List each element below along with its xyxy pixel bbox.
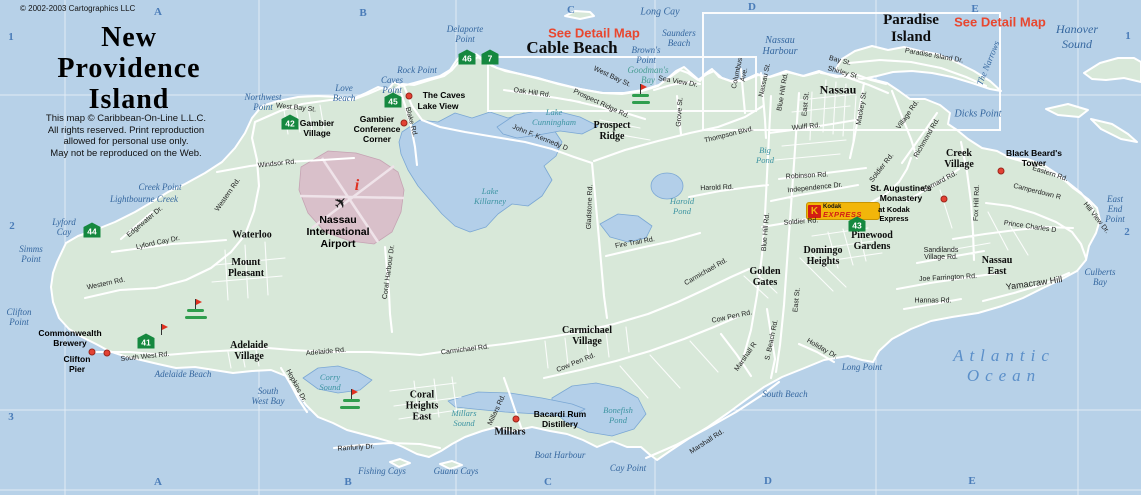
label-cow-pen-rd: Cow Pen Rd. <box>556 352 597 374</box>
label-waterloo: Waterloo <box>232 230 271 241</box>
grid-label-e: E <box>968 475 975 487</box>
label-long-point: Long Point <box>842 362 882 372</box>
poi-dot <box>89 349 96 356</box>
grid-label-b: B <box>359 7 366 19</box>
grid-label-2: 2 <box>9 220 15 232</box>
label-s-beach-rd: S. Beach Rd. <box>764 319 779 361</box>
label-joe-farrington-rd: Joe Farrington Rd. <box>919 273 977 283</box>
label-harold: Harold Pond <box>670 196 694 216</box>
label-blue-hill-rd: Blue Hill Rd. <box>761 213 771 252</box>
label-soldier-rd: Soldier Rd. <box>869 152 896 184</box>
golf-flag-icon <box>636 84 646 95</box>
label-thompson-blvd: Thompson Blvd. <box>704 125 755 144</box>
label-lake: Lake Cunningham <box>532 107 576 127</box>
label-sea-view-dr: Sea View Dr. <box>658 75 699 89</box>
label-camperdown-r: Camperdown R <box>1013 183 1062 202</box>
label-grove-st: Grove St. <box>675 97 684 127</box>
label-paradise-island-dr: Paradise Island Dr. <box>904 47 963 64</box>
poi-dot <box>406 93 413 100</box>
label-south-beach: South Beach <box>762 389 807 399</box>
map-marker-7[interactable]: 7 <box>482 50 499 65</box>
label-creek: Creek Village <box>944 148 974 170</box>
label-hanover-sound: Hanover Sound <box>1045 22 1109 52</box>
label-clifton: Clifton Pier <box>64 354 91 374</box>
poi-dot <box>401 120 408 127</box>
label-bacardi-rum: Bacardi Rum Distillery <box>534 409 586 429</box>
label-south: South West Bay <box>252 386 285 406</box>
label-goodman-s: Goodman's Bay <box>628 65 669 85</box>
label-carmichael-rd: Carmichael Rd. <box>441 344 490 357</box>
poi-dot <box>513 416 520 423</box>
grid-label-a: A <box>154 6 162 18</box>
label-bonefish: Bonefish Pond <box>603 405 633 425</box>
label-sandilands: Sandilands Village Rd. <box>924 247 959 261</box>
new-providence-island-map: © 2002-2003 Cartographics LLC New Provid… <box>0 0 1141 495</box>
label-northwest: Northwest Point <box>244 92 281 112</box>
label-delaporte: Delaporte Point <box>447 24 484 44</box>
label-at-kodak: at Kodak Express <box>878 205 910 223</box>
label-cay-point: Cay Point <box>610 463 646 473</box>
label-dicks-point: Dicks Point <box>955 109 1002 120</box>
label-holiday-dr: Holiday Dr. <box>805 337 838 360</box>
label-bernard-rd: Bernard Rd. <box>922 170 959 194</box>
label-boat-harbour: Boat Harbour <box>535 450 586 460</box>
map-marker-44[interactable]: 44 <box>84 223 101 238</box>
label-lyford-cay-dr: Lyford Cay Dr. <box>136 235 181 251</box>
poi-dot <box>998 168 1005 175</box>
grid-label-d: D <box>748 1 756 13</box>
label-marshall-r: Marshall R <box>734 341 759 372</box>
grid-label-a: A <box>154 476 162 488</box>
label-western-rd: Western Rd. <box>214 177 242 213</box>
label-golden: Golden Gates <box>749 266 780 288</box>
map-marker-41[interactable]: 41 <box>138 334 155 349</box>
label-richmond-rd: Richmond Rd. <box>913 117 941 159</box>
map-marker-46[interactable]: 46 <box>459 50 476 65</box>
labels-layer: Long CayHanover SoundThe NarrowsSaunders… <box>0 0 1141 495</box>
label-the-narrows: The Narrows <box>975 39 1002 86</box>
label-nassau: Nassau Harbour <box>762 35 797 57</box>
grid-label-2: 2 <box>1124 226 1130 238</box>
label-long-cay: Long Cay <box>640 7 679 18</box>
label-east-st: East St. <box>801 91 811 116</box>
label-fishing-cays: Fishing Cays <box>358 466 406 476</box>
label-wulff-rd: Wulff Rd. <box>791 122 820 132</box>
label-south-west-rd: South West Rd. <box>120 351 169 363</box>
label-st-augustine-s: St. Augustine's Monastery <box>870 183 931 203</box>
label-fox-hill-rd: Fox Hill Rd. <box>973 185 981 221</box>
label-western-rd: Western Rd. <box>86 277 125 292</box>
label-nassau: Nassau International Airport <box>306 214 369 250</box>
label-west-bay-st: West Bay St. <box>276 102 317 113</box>
label-oak-hill-rd: Oak Hill Rd. <box>513 87 551 99</box>
label-shirley-st: Shirley St. <box>827 65 860 81</box>
label-prospect: Prospect Ridge <box>593 120 630 142</box>
grid-label-c: C <box>567 4 575 16</box>
label-mackey-st: Mackey St. <box>856 90 869 125</box>
grid-label-e: E <box>971 3 978 15</box>
see-detail-map-link[interactable]: See Detail Map <box>548 26 640 41</box>
label-cable-beach: Cable Beach <box>526 38 617 58</box>
see-detail-map-link[interactable]: See Detail Map <box>954 15 1046 30</box>
label-adelaide-rd: Adelaide Rd. <box>306 347 347 357</box>
golf-flag-icon <box>191 299 201 310</box>
label-millars: Millars Sound <box>451 408 476 428</box>
map-marker-45[interactable]: 45 <box>385 93 402 108</box>
label-west-bay-st: West Bay St. <box>592 65 632 88</box>
label-brown-s: Brown's Point <box>631 45 660 65</box>
label-gambier: Gambier Conference Corner <box>354 114 401 144</box>
grid-label-3: 3 <box>8 411 14 423</box>
label-harold-rd: Harold Rd. <box>700 184 734 192</box>
label-hill-view-dr: Hill View Dr. <box>1082 201 1111 235</box>
label-fire-trail-rd: Fire Trail Rd. <box>615 236 656 250</box>
label-paradise: Paradise Island <box>883 12 939 46</box>
label-lake-view: Lake View <box>418 101 459 111</box>
label-coral: Coral Heights East <box>406 390 439 423</box>
label-adelaide: Adelaide Village <box>230 340 268 362</box>
label-hopkins-dr: Hopkins Dr. <box>284 368 307 403</box>
label-prospect-ridge-rd: Prospect Ridge Rd. <box>572 88 630 120</box>
label-windsor-rd: Windsor Rd. <box>257 159 296 170</box>
label-independence-dr: Independence Dr. <box>787 182 843 195</box>
label-lightbourne-creek: Lightbourne Creek <box>110 194 178 204</box>
label-carmichael-rd: Carmichael Rd. <box>683 257 728 287</box>
map-marker-42[interactable]: 42 <box>282 115 299 130</box>
label-east-st: East St. <box>792 287 802 312</box>
label-prince-charles-d: Prince Charles D <box>1003 220 1056 234</box>
label-commonwealth: Commonwealth Brewery <box>38 328 101 348</box>
label-gladstone-rd: Gladstone Rd. <box>586 185 595 230</box>
label-rock-point: Rock Point <box>397 65 437 75</box>
label-blue-hill-rd: Blue Hill Rd. <box>776 72 790 111</box>
label-adelaide-beach: Adelaide Beach <box>155 369 212 379</box>
grid-label-c: C <box>544 476 552 488</box>
poi-dot <box>941 196 948 203</box>
label-john-f-kennedy-d: John F. Kennedy D <box>511 124 568 153</box>
label-village-rd: Village Rd. <box>895 99 920 131</box>
golf-flag-icon <box>347 389 357 400</box>
label-lake: Lake Killarney <box>474 186 506 206</box>
label-atlantic-ocean: Atlantic Ocean <box>936 346 1073 386</box>
label-the-caves: The Caves <box>423 90 466 100</box>
label-soldier-rd: Soldier Rd. <box>783 217 818 226</box>
label-ranfurly-dr: Ranfurly Dr. <box>337 443 374 453</box>
label-carmichael: Carmichael Village <box>562 325 612 347</box>
label-yamacraw-hill: Yamacraw Hill <box>1005 274 1063 292</box>
label-mount: Mount Pleasant <box>228 257 264 279</box>
label-love: Love Beach <box>333 83 356 103</box>
label-domingo: Domingo Heights <box>804 245 843 267</box>
label-east: East End Point <box>1105 194 1125 224</box>
label-black-beard-s: Black Beard's Tower <box>1006 148 1062 168</box>
label-hannas-rd: Hannas Rd. <box>915 298 952 305</box>
label-millars-rd: Millars Rd. <box>487 394 507 427</box>
label-pinewood: Pinewood Gardens <box>851 230 893 252</box>
label-nassau: Nassau <box>820 83 857 98</box>
label-saunders: Saunders Beach <box>662 28 696 48</box>
label-marshall-rd: Marshall Rd. <box>689 428 726 455</box>
grid-label-d: D <box>764 475 772 487</box>
label-guana-cays: Guana Cays <box>434 466 479 476</box>
grid-label-1: 1 <box>8 31 14 43</box>
label-corry: Corry Sound <box>319 372 340 392</box>
label-culberts: Culberts Bay <box>1084 267 1115 287</box>
label-coral-harbour-dr: Coral Harbour Dr. <box>382 244 397 299</box>
label-robinson-rd: Robinson Rd. <box>786 171 829 180</box>
label-creek-point: Creek Point <box>139 182 182 192</box>
label-eastern-rd: Eastern Rd. <box>1031 165 1068 183</box>
label-bay-st: Bay St. <box>828 55 852 67</box>
label-clifton: Clifton Point <box>6 307 31 327</box>
label-nassau-st: Nassau St. <box>758 63 772 98</box>
label-columbus: Columbus Ave. <box>731 57 751 91</box>
label-cow-pen-rd: Cow Pen Rd. <box>711 309 753 324</box>
label-edgewater-dr: Edgewater Dr. <box>126 205 164 239</box>
golf-flag-icon <box>157 324 167 335</box>
label-millars: Millars <box>494 427 525 438</box>
label-simms: Simms Point <box>19 244 43 264</box>
grid-label-b: B <box>344 476 351 488</box>
map-marker-43[interactable]: 43 <box>849 217 866 232</box>
label-caves: Caves Point <box>381 75 403 95</box>
label-big: Big Pond <box>756 145 774 165</box>
label-gambier: Gambier Village <box>300 118 335 138</box>
grid-label-1: 1 <box>1125 30 1131 42</box>
label-lyford: Lyford Cay <box>52 217 75 237</box>
poi-dot <box>104 350 111 357</box>
label-nassau: Nassau East <box>982 255 1013 277</box>
